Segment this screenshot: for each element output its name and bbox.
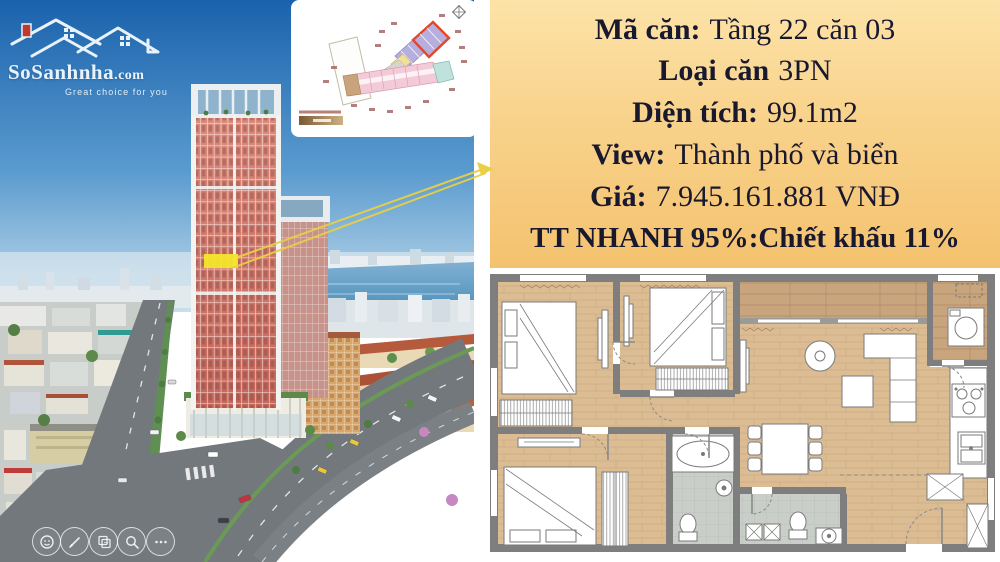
info-line-dien-tich: Diện tích: 99.1m2 [494,95,996,131]
unit-floor-plan [490,272,1000,562]
brand-tld: .com [114,68,144,83]
more-button[interactable] [146,527,175,556]
copy-icon [95,533,113,551]
floor-plan-drawing [490,272,1000,562]
copy-button[interactable] [89,527,118,556]
compass-icon [452,5,466,19]
draw-button[interactable] [60,527,89,556]
legend [299,111,343,126]
logo-houses-icon [8,10,160,60]
pen-icon [66,533,84,551]
info-line-ma-can: Mã căn: Tầng 22 căn 03 [494,12,996,48]
dining-set [748,424,822,474]
floor-highlight [204,254,238,268]
balcony-floor [740,280,927,322]
info-line-view: View: Thành phố và biển [494,137,996,173]
unit-info-panel: Mã căn: Tầng 22 căn 03 Loại căn 3PN Diện… [490,0,1000,268]
real-estate-listing-card: SoSanhnha.com Great choice for you [0,0,1000,562]
sticker-button[interactable] [32,527,61,556]
main-tower [191,84,281,410]
sticker-icon [38,533,56,551]
info-line-gia: Giá: 7.945.161.881 VNĐ [494,179,996,215]
brand-logo: SoSanhnha.com Great choice for you [8,10,168,97]
brand-tagline: Great choice for you [8,87,168,97]
info-line-thanh-toan: TT NHANH 95%:Chiết khấu 11% [494,220,996,256]
info-line-loai-can: Loại căn 3PN [494,53,996,89]
site-plan-card [291,0,477,137]
zoom-button[interactable] [117,527,146,556]
site-plan-drawing [291,0,477,137]
search-icon [123,533,141,551]
brand-name: SoSanhnha.com [8,60,168,85]
more-icon [152,533,170,551]
